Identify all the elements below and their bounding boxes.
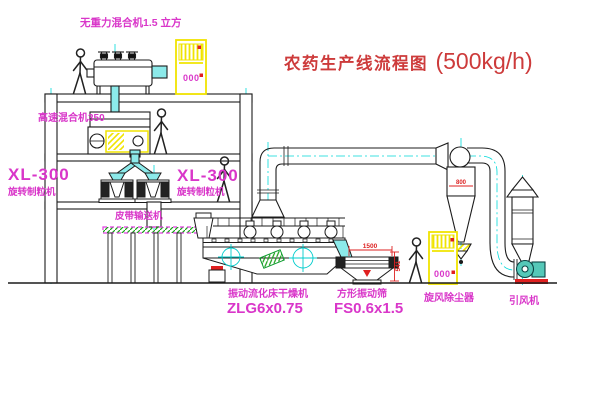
svg-text:1500: 1500 xyxy=(363,243,378,250)
label-granulator-right-model: XL-300 xyxy=(177,166,239,185)
label-dryer-model: ZLG6x0.75 xyxy=(227,300,303,317)
label-fan: 引风机 xyxy=(509,294,539,307)
worker-figure-4 xyxy=(410,238,423,283)
svg-text:800: 800 xyxy=(456,180,467,186)
cabinet1-display: 000 xyxy=(183,73,200,83)
flow-diagram: 000 xyxy=(0,0,600,403)
granulator-right xyxy=(135,180,171,203)
exhaust-duct xyxy=(252,143,448,217)
worker-figure-2 xyxy=(155,109,168,154)
label-screen-name: 方形振动筛 xyxy=(337,287,387,300)
label-granulator-right-name: 旋转制粒机 xyxy=(176,186,225,198)
label-dryer-name: 振动流化床干燥机 xyxy=(228,287,308,300)
cabinet2-display: 000 xyxy=(434,269,451,279)
granulator-left xyxy=(99,180,135,203)
diagram-title: 农药生产线流程图 (500kg/h) xyxy=(283,48,533,74)
belt-conveyor xyxy=(103,227,200,283)
mixer-valves xyxy=(98,52,138,60)
label-granulator-left-model: XL-300 xyxy=(8,165,70,184)
label-granulator-left-name: 旋转制粒机 xyxy=(7,186,56,198)
fluid-bed-dryer xyxy=(194,213,352,282)
control-cabinet-top: 000 xyxy=(176,40,206,94)
exhaust-stack xyxy=(507,177,538,261)
label-cyclone: 旋风除尘器 xyxy=(423,291,475,304)
svg-text:541: 541 xyxy=(395,260,402,271)
diagram-canvas: 000 xyxy=(0,0,600,403)
label-gravity-mixer: 无重力混合机1.5 立方 xyxy=(79,16,182,29)
dryer-dome-ports xyxy=(244,221,337,238)
label-belt-conveyor: 皮带输送机 xyxy=(114,210,163,222)
dimension-1500: 1500 xyxy=(349,243,392,256)
gravity-mixer xyxy=(87,52,167,112)
induced-draft-fan xyxy=(515,261,548,285)
label-screen-model: FS0.6x1.5 xyxy=(334,300,403,317)
worker-figure-1 xyxy=(74,49,87,94)
control-cabinet-right: 000 xyxy=(429,232,457,284)
label-high-speed-mixer: 高速混合机350 xyxy=(38,111,105,124)
